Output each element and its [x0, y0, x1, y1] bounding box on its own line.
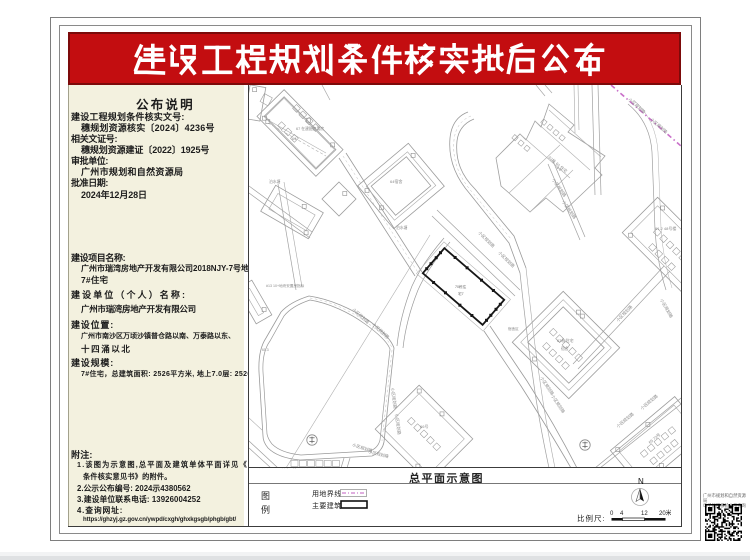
- svg-text:小区规划路: 小区规划路: [393, 413, 403, 436]
- svg-text:小区规划路: 小区规划路: [649, 116, 670, 136]
- svg-text:65 73号: 65 73号: [647, 431, 662, 445]
- svg-text:小区规划路: 小区规划路: [550, 177, 568, 199]
- svg-text:20米: 20米: [659, 509, 671, 517]
- svg-text:小区规划路: 小区规划路: [560, 199, 578, 221]
- svg-text:67 在建配套用房: 67 在建配套用房: [296, 126, 324, 131]
- svg-text:小区规划路: 小区规划路: [639, 392, 660, 411]
- svg-text:宿舍: 宿舍: [561, 346, 569, 351]
- svg-text:小区规划路: 小区规划路: [615, 410, 636, 429]
- svg-text:小区规划路: 小区规划路: [549, 393, 567, 415]
- svg-text:12: 12: [641, 511, 648, 517]
- svg-text:宿舍区: 宿舍区: [508, 326, 519, 331]
- svg-text:小区规划路: 小区规划路: [368, 448, 391, 460]
- svg-text:61.2 48号楼: 61.2 48号楼: [655, 225, 676, 231]
- svg-text:63栋住宅: 63栋住宅: [557, 337, 573, 343]
- svg-text:小区规划路: 小区规划路: [389, 387, 399, 410]
- svg-text:宅7: 宅7: [458, 291, 464, 296]
- svg-text:小区规划路: 小区规划路: [658, 298, 675, 320]
- svg-text:4: 4: [620, 511, 624, 517]
- svg-text:泊水塘: 泊水塘: [396, 225, 408, 230]
- svg-text:64: 64: [292, 137, 296, 141]
- svg-text:小区规划路: 小区规划路: [351, 306, 372, 326]
- svg-text:小区规划路: 小区规划路: [614, 303, 634, 324]
- svg-text:小区规划路: 小区规划路: [477, 229, 497, 249]
- svg-text:N: N: [638, 477, 644, 486]
- svg-text:66号: 66号: [420, 423, 428, 429]
- svg-text:小区规划路: 小区规划路: [497, 249, 517, 269]
- svg-text:#13 10+地块安置房指标: #13 10+地块安置房指标: [266, 283, 305, 288]
- svg-text:61.3: 61.3: [262, 348, 269, 352]
- svg-text:70栋住: 70栋住: [455, 284, 467, 289]
- svg-text:64宿舍: 64宿舍: [390, 178, 402, 184]
- svg-text:0: 0: [610, 511, 614, 517]
- svg-text:小区规划路: 小区规划路: [371, 321, 392, 341]
- svg-text:泊水塘: 泊水塘: [269, 179, 281, 184]
